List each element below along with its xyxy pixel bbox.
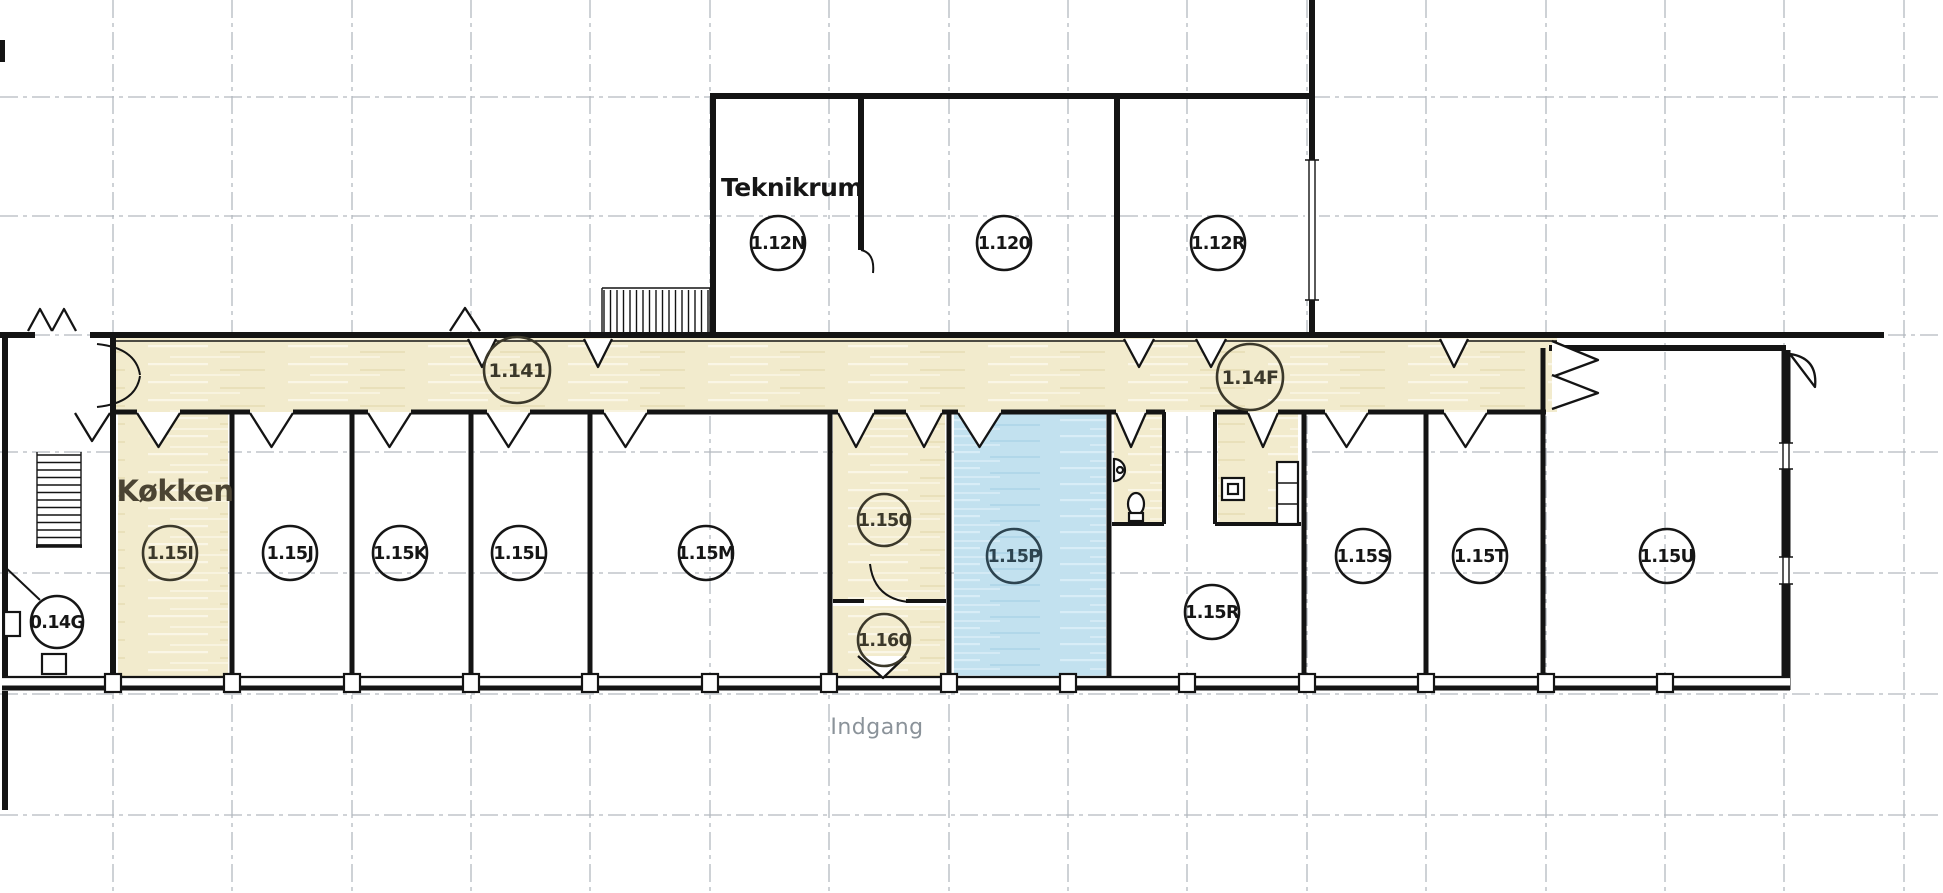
floor-plan: Teknikrum Køkken Indgang 1.12N 1.120 1.1… bbox=[0, 0, 1943, 893]
room-name-teknikrum: Teknikrum bbox=[721, 173, 863, 202]
floor-drain-inner-icon bbox=[1228, 484, 1238, 494]
entrance-label: Indgang bbox=[830, 715, 923, 740]
svg-text:1.15P: 1.15P bbox=[987, 547, 1041, 567]
svg-text:1.14F: 1.14F bbox=[1222, 367, 1279, 389]
corridor-floor-1-141[interactable] bbox=[113, 337, 1557, 412]
svg-text:1.120: 1.120 bbox=[978, 234, 1031, 254]
svg-text:0.14G: 0.14G bbox=[30, 613, 85, 633]
svg-text:1.12N: 1.12N bbox=[751, 234, 806, 254]
svg-text:1.141: 1.141 bbox=[488, 360, 545, 382]
svg-text:1.15K: 1.15K bbox=[373, 544, 429, 564]
svg-text:1.15J: 1.15J bbox=[267, 544, 314, 564]
svg-text:1.15U: 1.15U bbox=[1640, 547, 1694, 567]
shelf-unit-icon bbox=[1277, 462, 1298, 524]
svg-text:1.15L: 1.15L bbox=[493, 544, 545, 564]
svg-text:1.15T: 1.15T bbox=[1454, 547, 1507, 567]
svg-text:1.15R: 1.15R bbox=[1185, 603, 1240, 623]
room-floor-1-15p-highlighted[interactable] bbox=[954, 414, 1106, 676]
sink-drain-icon bbox=[1117, 467, 1123, 473]
svg-text:1.160: 1.160 bbox=[858, 631, 911, 651]
wall-fixture-icon bbox=[4, 612, 20, 636]
facade-window-band bbox=[2, 674, 1790, 692]
toilet-tank-icon bbox=[1129, 513, 1143, 521]
svg-text:1.12R: 1.12R bbox=[1191, 234, 1246, 254]
floor-fixture-icon bbox=[42, 654, 66, 674]
svg-text:1.15I: 1.15I bbox=[147, 544, 194, 564]
vestibule-floor-1-150[interactable] bbox=[833, 414, 945, 600]
svg-text:1.15S: 1.15S bbox=[1337, 547, 1390, 567]
svg-text:1.15M: 1.15M bbox=[677, 544, 735, 564]
svg-text:1.150: 1.150 bbox=[858, 511, 911, 531]
toilet-icon bbox=[1128, 493, 1144, 515]
room-name-kokken: Køkken bbox=[117, 474, 234, 508]
